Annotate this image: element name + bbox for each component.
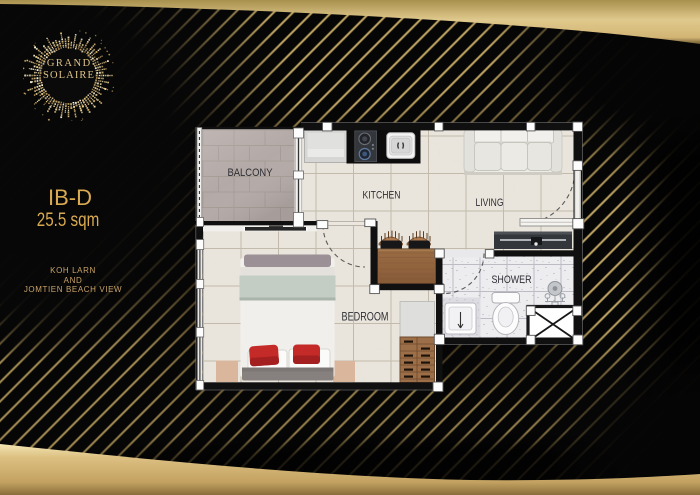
svg-text:SHOWER: SHOWER — [492, 274, 532, 286]
svg-text:KITCHEN: KITCHEN — [363, 190, 401, 202]
svg-text:BEDROOM: BEDROOM — [342, 312, 389, 324]
svg-text:LIVING: LIVING — [476, 197, 504, 209]
svg-text:BALCONY: BALCONY — [228, 167, 274, 179]
